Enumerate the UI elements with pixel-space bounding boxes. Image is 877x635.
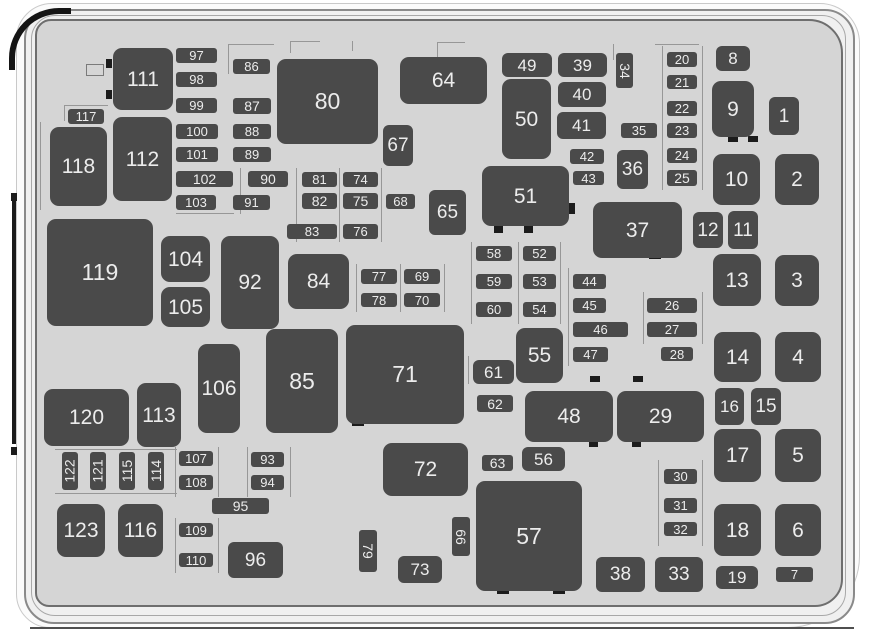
fuse-label: 116 (124, 520, 157, 541)
fuse-75: 75 (343, 193, 378, 209)
fuse-6: 6 (775, 504, 821, 556)
fuse-65: 65 (429, 190, 466, 235)
fuse-label: 67 (387, 136, 408, 155)
fuse-30: 30 (664, 469, 697, 484)
fuse-label: 65 (437, 203, 458, 222)
fuse-label: 2 (791, 169, 803, 190)
fuse-label: 68 (393, 195, 407, 208)
fuse-91: 91 (233, 195, 270, 210)
fuse-14: 14 (714, 332, 761, 382)
fuse-label: 96 (245, 551, 266, 570)
fuse-label: 114 (149, 460, 163, 482)
fuse-3: 3 (775, 255, 819, 306)
fuse-label: 76 (353, 225, 367, 238)
fuse-label: 82 (312, 194, 328, 208)
fuse-label: 50 (515, 109, 538, 130)
fuse-94: 94 (251, 475, 284, 490)
fuse-label: 16 (720, 398, 739, 415)
fuse-label: 101 (186, 148, 208, 161)
fuse-label: 87 (244, 99, 260, 113)
fuse-label: 112 (126, 149, 159, 170)
fuse-101: 101 (176, 147, 218, 162)
fuse-10: 10 (713, 154, 760, 205)
fuse-label: 91 (244, 196, 258, 209)
fuse-label: 43 (581, 172, 595, 185)
fuse-label: 90 (260, 172, 276, 186)
fuse-12: 12 (693, 212, 723, 248)
fuse-117: 117 (68, 109, 104, 124)
fuse-46: 46 (573, 322, 628, 337)
fuse-label: 94 (260, 476, 274, 489)
fuse-label: 115 (120, 460, 134, 482)
fuse-label: 15 (755, 397, 776, 416)
fuse-label: 41 (572, 117, 591, 134)
fuse-label: 77 (372, 270, 386, 283)
fuse-label: 99 (189, 99, 203, 112)
fuse-label: 106 (201, 378, 236, 399)
fuse-label: 21 (675, 76, 689, 89)
fuse-label: 59 (487, 275, 501, 288)
fuse-79: 79 (359, 530, 377, 572)
fuse-label: 58 (487, 247, 501, 260)
fuse-label: 38 (610, 565, 631, 584)
fuse-label: 57 (516, 525, 542, 548)
fuse-24: 24 (667, 148, 697, 163)
fuse-label: 80 (315, 90, 341, 113)
fuse-label: 19 (728, 569, 747, 586)
fuse-76: 76 (343, 224, 378, 239)
fuse-label: 30 (673, 470, 687, 483)
fuse-66: 66 (452, 517, 470, 556)
fuse-37: 37 (593, 202, 682, 258)
fuse-label: 9 (727, 99, 739, 120)
fuse-label: 72 (414, 459, 437, 480)
fuse-88: 88 (233, 124, 271, 139)
fuse-label: 8 (728, 50, 737, 67)
fuse-18: 18 (714, 504, 761, 556)
fuse-label: 32 (673, 523, 687, 536)
fuse-63: 63 (482, 455, 513, 471)
fuse-84: 84 (288, 254, 349, 309)
fuse-27: 27 (647, 322, 697, 337)
fuse-label: 97 (189, 49, 203, 62)
fuse-label: 51 (514, 186, 537, 207)
fuse-label: 71 (392, 363, 418, 386)
fuse-label: 34 (617, 63, 631, 79)
fuse-label: 12 (697, 221, 718, 240)
fuse-label: 113 (142, 405, 175, 426)
fuse-59: 59 (476, 274, 512, 289)
fuse-label: 23 (675, 124, 689, 137)
fuse-label: 28 (670, 348, 684, 361)
fuse-label: 70 (415, 294, 429, 307)
fuse-label: 81 (312, 173, 326, 186)
fuse-69: 69 (404, 269, 440, 284)
fuse-4: 4 (775, 332, 821, 382)
fuse-123: 123 (57, 504, 105, 557)
fuse-label: 93 (260, 453, 274, 466)
fuse-29: 29 (617, 391, 704, 442)
fuse-47: 47 (573, 347, 608, 362)
fuse-label: 26 (665, 299, 679, 312)
fuse-36: 36 (617, 150, 648, 189)
fuse-label: 78 (372, 294, 386, 307)
fuse-label: 95 (233, 499, 249, 513)
fuse-13: 13 (713, 254, 761, 306)
fuse-label: 100 (186, 125, 208, 138)
fuse-102: 102 (176, 171, 233, 187)
fuse-68: 68 (386, 194, 415, 209)
fuse-33: 33 (655, 557, 703, 592)
fuse-43: 43 (573, 171, 604, 185)
fuse-72: 72 (383, 443, 468, 496)
fuse-label: 39 (573, 57, 592, 74)
fuse-label: 33 (668, 565, 689, 584)
fuse-9: 9 (712, 81, 754, 137)
fuse-95: 95 (212, 498, 269, 514)
fuse-121: 121 (90, 452, 106, 490)
fuse-label: 40 (573, 86, 592, 103)
fuse-label: 25 (674, 171, 690, 185)
fuse-56: 56 (522, 447, 565, 471)
fuse-21: 21 (667, 75, 697, 89)
fuse-115: 115 (119, 452, 135, 490)
fuse-layer: 1234567891011121314151617181920212223242… (0, 0, 877, 635)
fuse-label: 119 (82, 261, 119, 284)
fuse-28: 28 (661, 347, 693, 361)
fuse-112: 112 (113, 117, 172, 201)
fuse-31: 31 (664, 498, 697, 513)
fuse-67: 67 (383, 125, 413, 166)
fuse-label: 107 (185, 452, 207, 465)
fuse-label: 111 (127, 69, 159, 90)
fuse-label: 98 (189, 73, 203, 86)
fuse-label: 44 (582, 275, 596, 288)
fuse-80: 80 (277, 59, 378, 144)
fuse-label: 84 (307, 271, 330, 292)
fuse-label: 104 (168, 249, 203, 270)
fuse-label: 88 (245, 125, 259, 138)
fuse-label: 48 (557, 406, 580, 427)
fuse-90: 90 (248, 171, 288, 187)
fuse-86: 86 (233, 59, 270, 74)
fuse-label: 4 (792, 347, 804, 368)
fuse-120: 120 (44, 389, 129, 446)
fuse-label: 35 (632, 124, 646, 137)
fuse-label: 117 (76, 110, 97, 123)
fuse-78: 78 (361, 293, 397, 307)
fuse-62: 62 (477, 395, 513, 412)
fuse-118: 118 (50, 127, 107, 206)
fuse-label: 66 (454, 529, 468, 545)
fuse-111: 111 (113, 48, 173, 110)
fuse-114: 114 (148, 452, 164, 490)
fuse-label: 24 (675, 149, 689, 162)
fuse-label: 109 (185, 524, 207, 537)
fuse-label: 123 (63, 520, 98, 541)
fuse-label: 47 (583, 348, 597, 361)
fuse-34: 34 (616, 53, 633, 88)
fuse-108: 108 (179, 475, 213, 490)
fuse-71: 71 (346, 325, 464, 424)
fuse-41: 41 (557, 112, 606, 139)
fuse-label: 54 (532, 303, 546, 316)
fuse-label: 110 (186, 554, 207, 567)
fuse-100: 100 (176, 124, 218, 139)
fuse-label: 85 (289, 370, 315, 393)
fuse-label: 5 (792, 445, 804, 466)
fuse-label: 18 (726, 520, 749, 541)
fuse-label: 121 (91, 459, 105, 482)
fuse-label: 31 (673, 499, 687, 512)
fuse-57: 57 (476, 481, 582, 591)
fuse-11: 11 (728, 211, 758, 249)
fuse-1: 1 (769, 97, 799, 135)
fuse-23: 23 (667, 123, 697, 138)
fuse-20: 20 (667, 52, 697, 67)
fuse-label: 29 (649, 406, 672, 427)
fuse-label: 62 (487, 397, 503, 411)
fuse-98: 98 (176, 72, 217, 87)
fuse-64: 64 (400, 57, 487, 104)
fuse-119: 119 (47, 219, 153, 326)
fuse-label: 56 (534, 451, 553, 468)
fuse-label: 63 (490, 456, 506, 470)
fuse-105: 105 (161, 287, 210, 327)
fuse-label: 46 (593, 323, 607, 336)
fuse-label: 36 (622, 160, 643, 179)
fuse-label: 73 (411, 561, 430, 578)
fuse-61: 61 (473, 360, 514, 384)
fuse-51: 51 (482, 166, 569, 226)
fuse-label: 13 (725, 270, 748, 291)
fuse-label: 74 (353, 173, 367, 186)
fuse-label: 86 (244, 60, 258, 73)
fuse-label: 45 (582, 299, 596, 312)
fuse-label: 7 (791, 568, 798, 581)
fuse-53: 53 (523, 274, 556, 289)
fuse-label: 6 (792, 520, 804, 541)
fuse-96: 96 (228, 542, 283, 578)
fuse-label: 20 (675, 53, 689, 66)
fuse-38: 38 (596, 557, 645, 592)
fuse-106: 106 (198, 344, 240, 433)
fuse-label: 122 (63, 459, 77, 482)
fuse-label: 10 (725, 169, 748, 190)
fuse-label: 64 (432, 70, 455, 91)
fuse-16: 16 (715, 388, 744, 425)
fuse-55: 55 (516, 328, 563, 383)
fuse-label: 75 (353, 194, 369, 208)
fuse-113: 113 (137, 383, 181, 447)
fuse-7: 7 (776, 567, 813, 582)
fuse-74: 74 (343, 172, 378, 187)
fuse-116: 116 (118, 504, 163, 557)
fuse-48: 48 (525, 391, 613, 442)
fuse-label: 1 (779, 107, 790, 126)
fuse-2: 2 (775, 154, 819, 205)
fuse-label: 103 (185, 196, 207, 209)
fuse-label: 17 (726, 445, 749, 466)
fuse-54: 54 (523, 302, 556, 317)
fuse-5: 5 (775, 429, 821, 482)
fuse-label: 79 (361, 543, 375, 559)
fuse-81: 81 (302, 172, 337, 187)
fuse-109: 109 (179, 523, 213, 537)
fuse-label: 49 (518, 57, 537, 74)
fuse-label: 14 (726, 347, 749, 368)
fuse-110: 110 (179, 553, 213, 567)
fuse-label: 89 (245, 148, 259, 161)
fuse-label: 27 (665, 323, 679, 336)
fuse-label: 92 (238, 272, 261, 293)
fuse-17: 17 (714, 429, 761, 482)
fuse-label: 108 (185, 476, 207, 489)
fuse-22: 22 (667, 101, 697, 116)
fuse-122: 122 (62, 452, 78, 490)
fuse-label: 42 (580, 150, 594, 163)
fuse-87: 87 (233, 98, 271, 114)
fuse-label: 22 (675, 102, 689, 115)
fuse-82: 82 (302, 193, 337, 209)
fuse-label: 60 (487, 303, 501, 316)
fuse-label: 118 (62, 156, 95, 177)
fuse-label: 105 (168, 297, 203, 318)
fuse-15: 15 (751, 388, 781, 425)
fuse-60: 60 (476, 302, 512, 317)
fuse-39: 39 (558, 53, 607, 77)
fuse-label: 11 (733, 221, 753, 240)
fuse-83: 83 (287, 224, 337, 239)
fuse-103: 103 (176, 195, 216, 210)
fuse-label: 69 (415, 270, 429, 283)
fuse-label: 52 (532, 247, 546, 260)
fuse-label: 37 (626, 220, 649, 241)
fuse-label: 55 (528, 345, 551, 366)
fuse-label: 120 (69, 407, 104, 428)
fuse-107: 107 (179, 451, 213, 466)
fuse-32: 32 (664, 522, 697, 536)
fuse-50: 50 (502, 79, 551, 159)
fuse-73: 73 (398, 556, 442, 583)
fuse-label: 83 (305, 225, 319, 238)
fuse-label: 102 (193, 172, 216, 186)
fuse-77: 77 (361, 269, 397, 284)
fuse-93: 93 (251, 452, 284, 467)
fuse-25: 25 (667, 170, 697, 186)
fuse-44: 44 (573, 274, 606, 289)
fuse-label: 61 (484, 364, 503, 381)
fuse-19: 19 (716, 566, 758, 589)
fuse-89: 89 (233, 147, 271, 162)
fuse-99: 99 (176, 98, 217, 113)
fuse-42: 42 (570, 149, 604, 164)
fuse-85: 85 (266, 329, 338, 433)
fuse-70: 70 (404, 293, 440, 307)
fuse-26: 26 (647, 298, 697, 313)
fuse-49: 49 (502, 53, 552, 77)
fuse-label: 3 (791, 270, 803, 291)
fuse-label: 53 (532, 275, 546, 288)
fuse-104: 104 (161, 236, 210, 282)
fuse-52: 52 (523, 246, 556, 261)
fuse-40: 40 (558, 82, 606, 107)
fuse-8: 8 (716, 46, 750, 71)
fuse-35: 35 (621, 123, 657, 138)
fuse-97: 97 (176, 48, 217, 63)
fuse-58: 58 (476, 246, 512, 261)
fuse-45: 45 (573, 298, 606, 313)
fuse-92: 92 (221, 236, 279, 329)
fuse-box-diagram: 1234567891011121314151617181920212223242… (0, 0, 877, 635)
